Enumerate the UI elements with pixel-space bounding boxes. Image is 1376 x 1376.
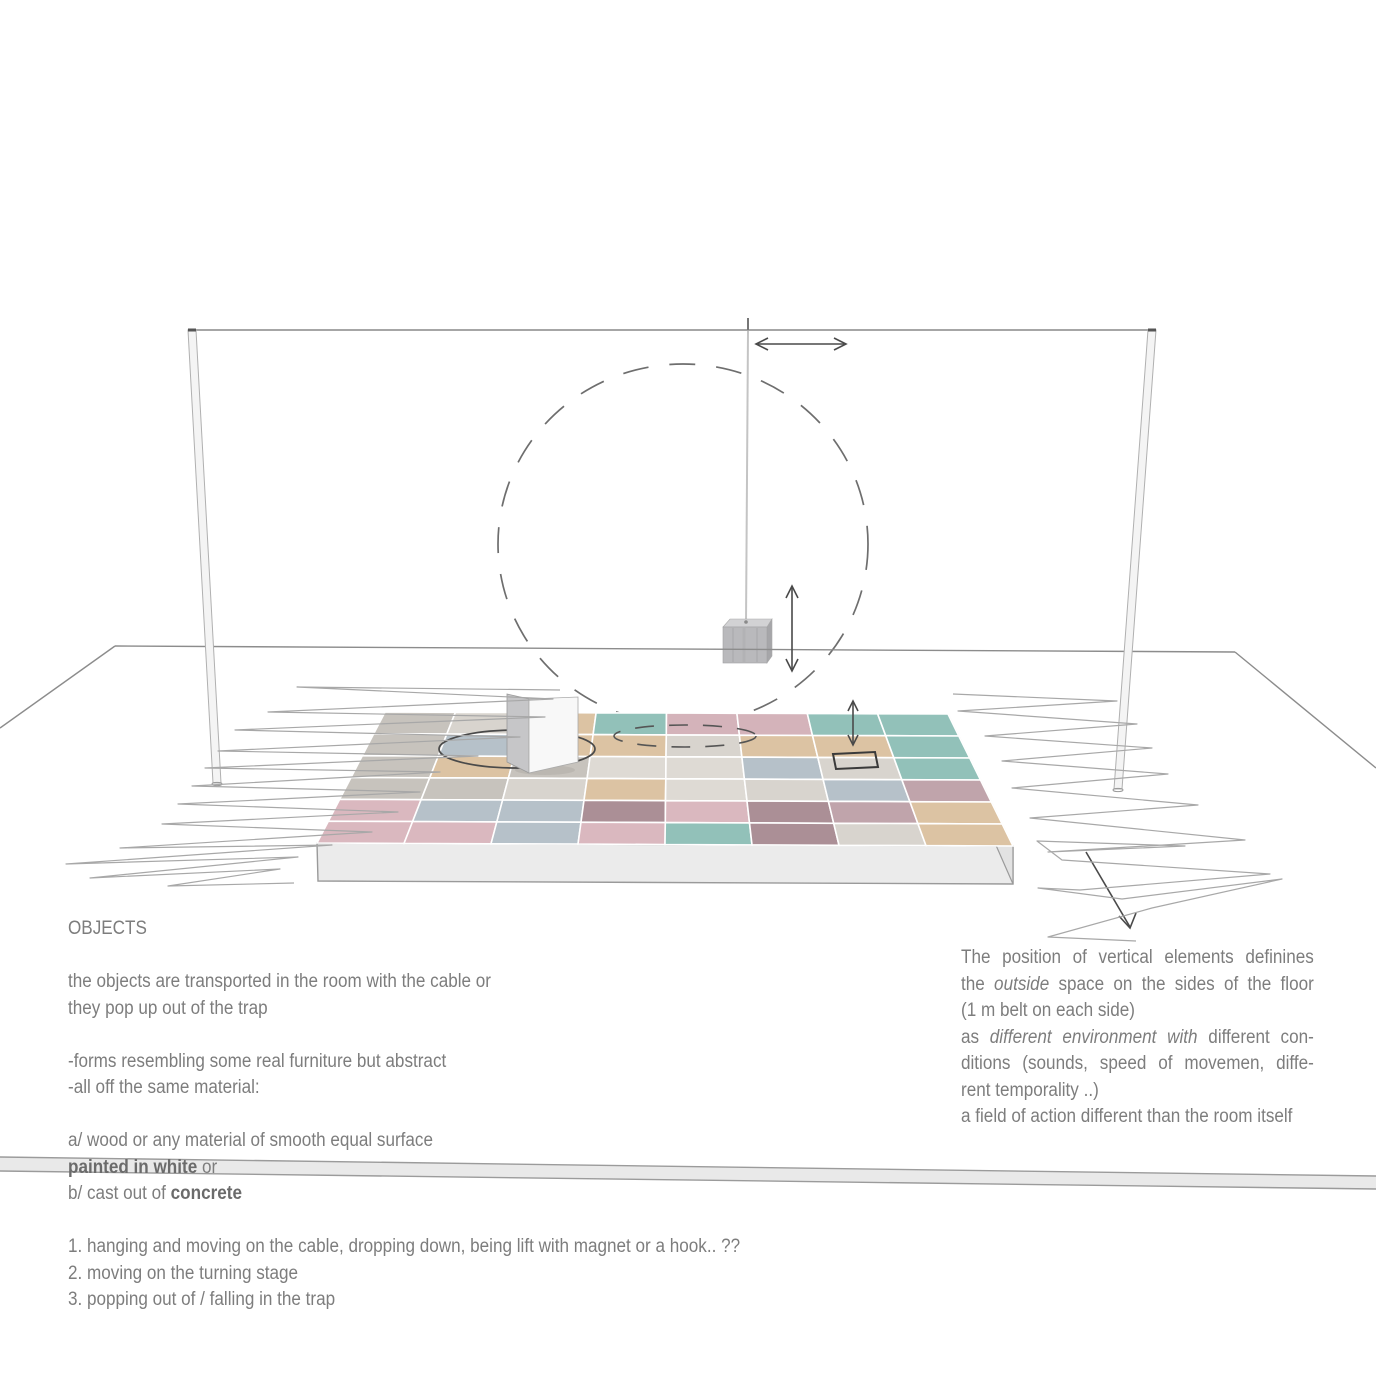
text-segment: different environment with <box>990 1027 1198 1048</box>
dashed-circle-path <box>498 364 868 724</box>
text-segment: or <box>197 1157 217 1178</box>
floor-tile <box>894 758 981 780</box>
floor-tile <box>666 779 748 801</box>
text-segment: b/ cast out of <box>68 1183 171 1204</box>
text-segment: 1. hanging and moving on the cable, drop… <box>68 1236 740 1257</box>
text-segment: the <box>961 974 994 995</box>
floor-tile <box>823 779 910 801</box>
floor-tile <box>404 822 497 844</box>
text-line: 1. hanging and moving on the cable, drop… <box>68 1234 770 1261</box>
floor-tile <box>750 823 840 845</box>
floor-tile <box>497 800 584 822</box>
floor-tile <box>665 801 749 823</box>
floor-tile <box>834 823 926 845</box>
floor-tile <box>807 714 885 736</box>
hanging-cable <box>746 318 748 624</box>
text-line: ditions (sounds, speed of movemen, diffe… <box>961 1051 1314 1078</box>
floor-tile <box>340 778 430 800</box>
floor-tile <box>747 801 834 823</box>
text-segment: space on the sides of the floor <box>1049 974 1314 995</box>
text-line <box>68 1102 770 1129</box>
floor-tile <box>362 734 447 756</box>
floor-tile <box>666 713 739 735</box>
floor-tile <box>413 800 503 822</box>
floor-tile <box>587 757 666 779</box>
text-segment: -all off the same material: <box>68 1077 260 1098</box>
text-segment: a field of action different than the roo… <box>961 1106 1292 1127</box>
text-line: rent temporality ..) <box>961 1078 1314 1105</box>
floor-tile <box>665 823 752 845</box>
text-line: a field of action different than the roo… <box>961 1104 1314 1131</box>
platform-skirt-front <box>317 843 1013 884</box>
text-line <box>68 943 770 970</box>
text-line: 2. moving on the turning stage <box>68 1261 770 1288</box>
text-segment: as <box>961 1027 990 1048</box>
floor-tile <box>593 713 666 735</box>
text-line <box>68 1208 770 1235</box>
floor-tile <box>666 757 745 779</box>
floor-tile <box>421 778 508 800</box>
floor-tile <box>902 780 992 802</box>
text-segment: concrete <box>171 1183 242 1204</box>
text-line: the outside space on the sides of the fl… <box>961 972 1314 999</box>
floor-tile <box>742 757 823 779</box>
objects-text-block: OBJECTS the objects are transported in t… <box>68 916 770 1314</box>
text-segment: The position of vertical elements defini… <box>961 947 1314 968</box>
vertical-elements-text-block: The position of vertical elements defini… <box>961 945 1314 1131</box>
floor-tile <box>666 735 742 757</box>
left-pole <box>188 330 222 786</box>
hanging-cube <box>723 619 772 663</box>
floor-tile <box>581 800 666 822</box>
text-segment: 2. moving on the turning stage <box>68 1263 298 1284</box>
floor-tile <box>910 802 1002 824</box>
floor-tile <box>744 779 828 801</box>
text-line: (1 m belt on each side) <box>961 998 1314 1025</box>
text-segment: OBJECTS <box>68 918 147 939</box>
standing-panel <box>507 694 578 775</box>
floor-tile <box>491 822 581 844</box>
stage-platform <box>317 712 1013 884</box>
right-scribble <box>953 694 1282 941</box>
floor-tile <box>584 778 666 800</box>
text-segment: painted in white <box>68 1157 197 1178</box>
floor-tile <box>886 736 970 758</box>
text-segment: outside <box>994 974 1049 995</box>
text-line: -forms resembling some real furniture bu… <box>68 1049 770 1076</box>
text-segment: they pop up out of the trap <box>68 998 268 1019</box>
text-line: -all off the same material: <box>68 1075 770 1102</box>
text-line: they pop up out of the trap <box>68 996 770 1023</box>
floor-tile <box>828 801 918 823</box>
text-line: The position of vertical elements defini… <box>961 945 1314 972</box>
floor-tile <box>739 735 817 757</box>
text-segment: a/ wood or any material of smooth equal … <box>68 1130 433 1151</box>
text-line: b/ cast out of concrete <box>68 1181 770 1208</box>
text-line: the objects are transported in the room … <box>68 969 770 996</box>
floor-tile <box>578 822 665 844</box>
text-segment: different con- <box>1198 1027 1314 1048</box>
text-segment: rent temporality ..) <box>961 1080 1099 1101</box>
tile-grid <box>317 712 1013 846</box>
vertical-move-arrow <box>786 586 798 671</box>
text-segment: the objects are transported in the room … <box>68 971 491 992</box>
text-line: as different environment with different … <box>961 1025 1314 1052</box>
floor-tile <box>503 778 587 800</box>
horizontal-move-arrow <box>756 338 846 350</box>
text-segment: (1 m belt on each side) <box>961 1000 1135 1021</box>
floor-tile <box>878 714 959 736</box>
floor-tile <box>737 713 813 735</box>
text-segment: -forms resembling some real furniture bu… <box>68 1051 446 1072</box>
text-line: a/ wood or any material of smooth equal … <box>68 1128 770 1155</box>
text-line: 3. popping out of / falling in the trap <box>68 1287 770 1314</box>
text-segment: ditions (sounds, speed of movemen, diffe… <box>961 1053 1314 1074</box>
text-line: OBJECTS <box>68 916 770 943</box>
floor-tile <box>918 824 1013 846</box>
text-segment: 3. popping out of / falling in the trap <box>68 1289 335 1310</box>
text-line <box>68 1022 770 1049</box>
text-line: painted in white or <box>68 1155 770 1182</box>
